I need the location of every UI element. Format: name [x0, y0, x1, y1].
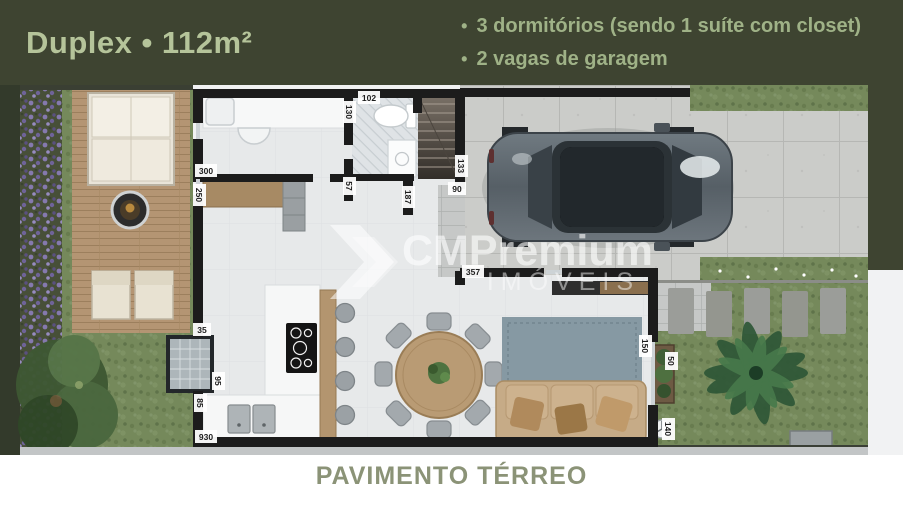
bathroom-cabinet [388, 140, 416, 177]
garden-curb [652, 280, 868, 283]
svg-text:102: 102 [362, 93, 376, 103]
svg-text:187: 187 [403, 190, 413, 204]
feature-item-garagem: • 2 vagas de garagem [461, 48, 668, 71]
svg-text:57: 57 [344, 181, 354, 191]
dim-label-130: 130 [343, 101, 356, 123]
svg-text:133: 133 [456, 159, 466, 173]
dim-label-50: 50 [665, 352, 678, 370]
hedge-shadow-strip [0, 85, 20, 455]
dim-label-85: 85 [194, 394, 207, 412]
staircase [418, 95, 458, 179]
footer-band: PAVIMENTO TÉRREO [0, 455, 903, 515]
dim-label-133: 133 [455, 155, 468, 177]
cooktop [286, 323, 317, 373]
svg-text:930: 930 [199, 432, 213, 442]
dim-label-140: 140 [662, 418, 675, 440]
floor-caption: PAVIMENTO TÉRREO [316, 462, 588, 515]
dim-label-90: 90 [448, 182, 466, 195]
fire-pit [112, 192, 148, 228]
svg-text:140: 140 [663, 422, 673, 436]
feature-text: 3 dormitórios (sendo 1 suíte com closet) [476, 15, 861, 38]
toilet [374, 104, 416, 128]
dim-label-930: 930 [195, 430, 217, 443]
bullet-icon: • [461, 16, 467, 37]
right-garden [652, 280, 868, 451]
floor-plan: 130 102 300 250 57 187 [0, 85, 903, 455]
feature-list: • 3 dormitórios (sendo 1 suíte com close… [461, 15, 875, 71]
breakfast-bar [320, 290, 336, 440]
table-plant [428, 362, 450, 384]
glass-block-panel [166, 335, 214, 393]
pillow [509, 396, 545, 432]
pillow [554, 403, 588, 435]
front-grass-strip [690, 85, 868, 111]
svg-text:90: 90 [452, 184, 462, 194]
svg-text:50: 50 [666, 356, 676, 366]
header-band: Duplex • 112m² • 3 dormitórios (sendo 1 … [0, 0, 903, 85]
sofa [496, 381, 646, 443]
dim-label-95: 95 [212, 372, 225, 390]
rug [502, 317, 642, 389]
dim-label-57: 57 [343, 177, 356, 195]
left-outdoor-area [0, 85, 193, 455]
svg-text:85: 85 [195, 398, 205, 408]
svg-text:95: 95 [213, 376, 223, 386]
dim-label-150: 150 [639, 335, 652, 357]
lounge-chair [135, 271, 173, 319]
bathroom [352, 95, 418, 180]
dim-label-187: 187 [402, 186, 415, 208]
svg-text:250: 250 [194, 188, 204, 202]
garage-front-wall [460, 88, 690, 97]
dim-label-35: 35 [193, 323, 211, 336]
svg-text:300: 300 [199, 166, 213, 176]
page-title: Duplex • 112m² [26, 25, 252, 61]
svg-text:35: 35 [197, 325, 207, 335]
bullet-icon: • [461, 49, 467, 70]
svg-text:150: 150 [640, 339, 650, 353]
front-boundary-wall [20, 85, 193, 90]
dim-label-102: 102 [358, 91, 380, 104]
lounge-chair [92, 271, 130, 319]
dim-label-250: 250 [193, 184, 206, 206]
feature-item-dormitorios: • 3 dormitórios (sendo 1 suíte com close… [461, 15, 861, 38]
dim-label-300: 300 [195, 164, 217, 177]
daybed [88, 93, 174, 185]
sidewalk [20, 447, 868, 455]
svg-text:130: 130 [344, 105, 354, 119]
flyer-page: Duplex • 112m² • 3 dormitórios (sendo 1 … [0, 0, 903, 515]
laundry-sink [206, 98, 234, 125]
feature-text: 2 vagas de garagem [476, 48, 667, 71]
utility-box [790, 431, 832, 447]
watermark-subtitle: IMÓVEIS [487, 267, 640, 296]
background-band [868, 85, 903, 270]
